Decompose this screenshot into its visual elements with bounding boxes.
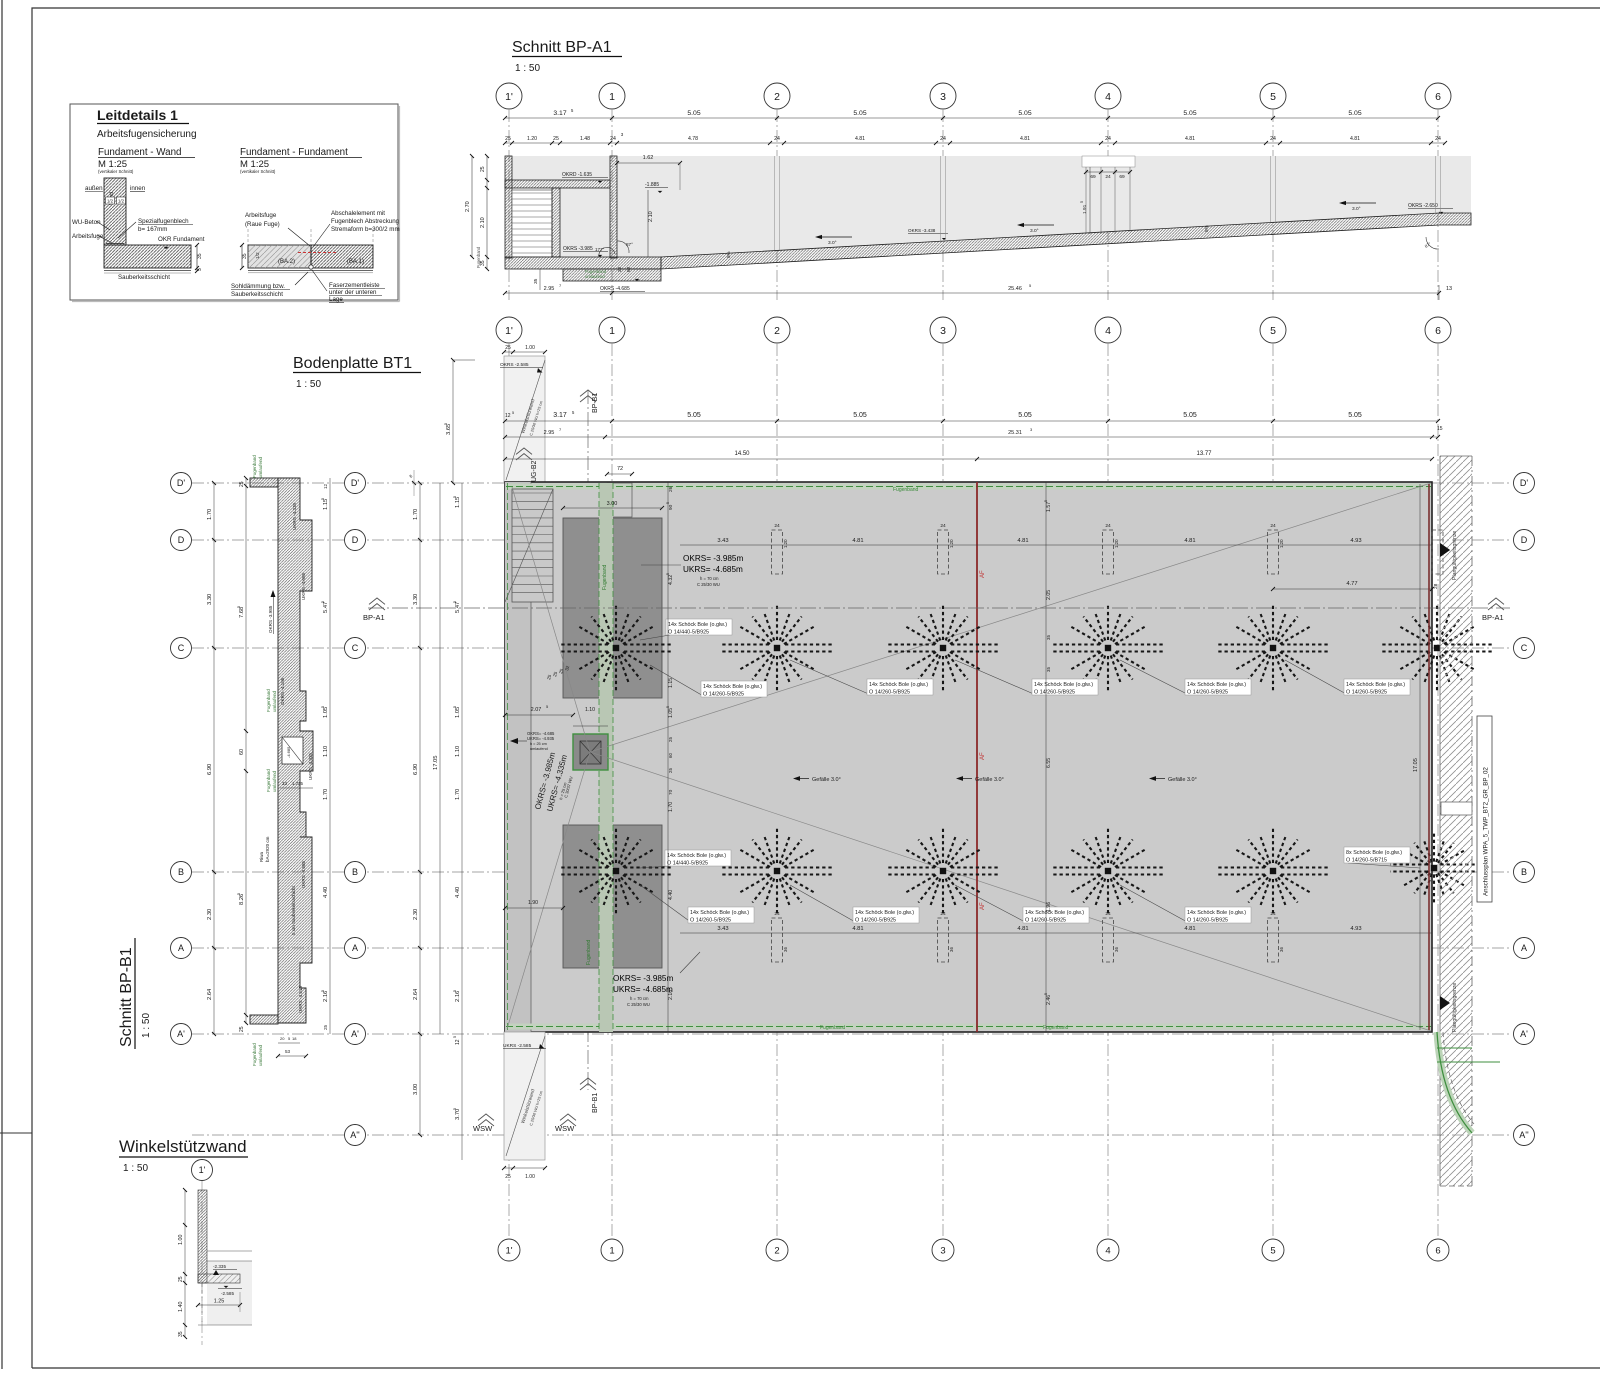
svg-text:-2.585: -2.585 [221,1291,234,1296]
svg-text:2.30: 2.30 [413,909,419,920]
svg-text:1.62: 1.62 [643,155,654,161]
svg-text:25: 25 [178,1276,184,1282]
svg-text:1': 1' [505,91,513,103]
svg-text:-1.885: -1.885 [645,182,659,188]
svg-text:WSW: WSW [473,1124,493,1133]
svg-text:1.25: 1.25 [214,1299,225,1305]
svg-text:1.10: 1.10 [323,746,329,757]
svg-text:4.40: 4.40 [668,890,674,900]
svg-text:O 14/260-5/B925: O 14/260-5/B925 [1346,690,1387,696]
svg-text:C: C [1521,643,1528,653]
svg-text:5: 5 [453,706,457,708]
svg-text:O 14/260-5/B925: O 14/260-5/B925 [1025,918,1066,924]
svg-text:umlaufend: umlaufend [530,747,548,751]
svg-text:60: 60 [668,753,673,758]
svg-text:1.15: 1.15 [668,678,674,688]
svg-text:Gefälle 3.0°: Gefälle 3.0° [975,777,1004,783]
svg-text:Fugenband: Fugenband [252,455,257,478]
svg-text:A: A [1521,943,1527,953]
svg-text:1 : 50: 1 : 50 [515,63,540,74]
svg-text:3: 3 [940,325,946,337]
svg-text:4.81: 4.81 [852,926,863,932]
svg-text:A': A' [177,1029,185,1039]
svg-text:5: 5 [321,498,325,500]
svg-text:Fugenband: Fugenband [893,487,919,493]
svg-text:17.05: 17.05 [433,755,439,770]
svg-text:1.00: 1.00 [525,345,535,351]
svg-text:53: 53 [285,1049,291,1054]
svg-text:O 14/260-5/B925: O 14/260-5/B925 [1187,690,1228,696]
svg-text:Fugenband: Fugenband [820,1025,846,1031]
svg-text:6.55: 6.55 [1046,758,1052,768]
svg-text:1/2: 1/2 [118,199,125,204]
svg-text:14x Schöck Bole (o.glw.): 14x Schöck Bole (o.glw.) [667,853,726,859]
svg-text:2.10: 2.10 [480,217,486,228]
svg-text:1.91: 1.91 [1082,204,1088,214]
svg-text:24: 24 [940,911,946,917]
svg-text:69: 69 [1119,174,1125,180]
svg-text:1: 1 [609,91,615,103]
svg-text:5.05: 5.05 [1348,412,1362,419]
svg-text:25: 25 [668,737,673,742]
svg-text:2.30: 2.30 [207,909,213,920]
svg-text:8x Schöck Bole (o.glw.): 8x Schöck Bole (o.glw.) [1346,850,1402,856]
svg-text:1.70: 1.70 [413,509,419,520]
svg-text:25: 25 [239,1026,245,1032]
svg-text:5: 5 [666,502,670,504]
svg-text:Gefälle 3.0°: Gefälle 3.0° [1168,777,1197,783]
svg-text:25: 25 [668,768,673,773]
svg-text:5: 5 [321,990,325,992]
svg-text:4.81: 4.81 [852,538,863,544]
svg-text:1.70: 1.70 [668,802,674,812]
svg-text:innen: innen [130,185,146,192]
svg-text:bA=2920 cm: bA=2920 cm [265,836,270,862]
svg-text:13.77: 13.77 [1196,451,1212,457]
svg-text:3.30: 3.30 [413,594,419,605]
svg-text:14x Schöck Bole (o.glw.): 14x Schöck Bole (o.glw.) [690,910,749,916]
svg-text:1/2: 1/2 [107,199,114,204]
svg-text:1.70: 1.70 [207,509,213,520]
svg-text:2.70: 2.70 [465,201,471,212]
svg-text:14x Schöck Bole (o.glw.): 14x Schöck Bole (o.glw.) [1034,682,1093,688]
svg-text:5: 5 [237,606,241,608]
svg-text:5: 5 [1044,993,1048,995]
svg-text:24: 24 [1105,174,1111,180]
svg-text:2.95: 2.95 [544,430,555,436]
svg-text:B: B [352,867,358,877]
svg-text:Arbeitsfuge: Arbeitsfuge [72,233,104,240]
svg-text:14.50: 14.50 [734,451,750,457]
svg-text:BP-B1: BP-B1 [592,393,599,413]
svg-text:1.20: 1.20 [1279,539,1284,548]
svg-text:OKRS -2.585: OKRS -2.585 [500,362,529,368]
svg-text:1.725: 1.725 [292,781,304,786]
svg-text:(vertikaler Schnitt): (vertikaler Schnitt) [98,169,134,174]
svg-text:UKRS= -4.685m: UKRS= -4.685m [613,985,673,994]
svg-text:6: 6 [1435,1245,1440,1256]
svg-text:O 14/260-5/B925: O 14/260-5/B925 [1187,918,1228,924]
svg-text:5.05: 5.05 [853,412,867,419]
svg-text:15: 15 [1437,426,1443,432]
svg-text:4.81: 4.81 [1184,926,1195,932]
svg-text:1.48: 1.48 [580,136,590,142]
svg-text:36: 36 [1114,947,1119,952]
svg-text:OKRD -1.635: OKRD -1.635 [562,172,592,178]
svg-text:24: 24 [774,136,780,142]
svg-text:3.43: 3.43 [717,926,728,932]
svg-text:2: 2 [774,325,780,337]
svg-text:C 25/30 WU: C 25/30 WU [627,1002,650,1007]
svg-text:Sohldämmung bzw.: Sohldämmung bzw. [231,283,285,290]
svg-text:5: 5 [453,1108,457,1110]
svg-text:5: 5 [1044,500,1048,502]
svg-text:Lage: Lage [329,296,343,303]
svg-text:26: 26 [668,486,674,492]
svg-text:5: 5 [453,1036,457,1038]
svg-text:3: 3 [940,91,946,103]
svg-text:60: 60 [239,749,245,755]
svg-text:(vertikaler Schnitt): (vertikaler Schnitt) [240,169,276,174]
svg-text:5: 5 [453,990,457,992]
svg-text:5: 5 [321,601,325,603]
svg-text:5: 5 [197,268,203,271]
svg-text:h = 70 cm: h = 70 cm [630,996,649,1001]
svg-text:-2.335: -2.335 [213,1264,226,1269]
svg-text:1': 1' [505,1245,512,1256]
svg-text:14x Schöck Bole (o.glw.): 14x Schöck Bole (o.glw.) [1346,682,1405,688]
svg-text:Leitdetails 1: Leitdetails 1 [97,107,178,123]
svg-text:A'': A'' [1519,1130,1529,1140]
svg-text:14x Schöck Bole (o.glw.): 14x Schöck Bole (o.glw.) [1025,910,1084,916]
svg-text:OKRS -4.685: OKRS -4.685 [600,286,630,292]
svg-text:Schnitt BP-B1: Schnitt BP-B1 [118,947,135,1047]
svg-text:unter der unteren: unter der unteren [329,289,377,296]
svg-text:3.30: 3.30 [207,594,213,605]
svg-text:25: 25 [239,481,245,487]
svg-text:Fugenband: Fugenband [586,939,592,965]
svg-text:Fugenband: Fugenband [266,689,271,712]
svg-text:WU-Beton: WU-Beton [72,219,101,226]
svg-text:1.20: 1.20 [1114,539,1119,548]
svg-text:1.40: 1.40 [178,1302,184,1313]
svg-text:Schnitt BP-A1: Schnitt BP-A1 [512,39,612,56]
svg-text:O 14/260-5/B925: O 14/260-5/B925 [703,692,744,698]
svg-text:umlaufend: umlaufend [272,690,277,712]
svg-text:Winkelstützwand: Winkelstützwand [119,1137,247,1156]
svg-text:O 14/260-5/B925: O 14/260-5/B925 [869,690,910,696]
svg-text:Sauberkeitsschicht: Sauberkeitsschicht [118,274,170,281]
svg-text:OKRS= -3.985m: OKRS= -3.985m [683,554,743,563]
svg-text:24: 24 [774,523,780,529]
svg-text:3.17: 3.17 [553,412,567,419]
svg-text:24: 24 [1105,911,1111,917]
svg-text:4.93: 4.93 [1350,926,1361,932]
svg-text:Gefälle 3.0°: Gefälle 3.0° [812,777,841,783]
svg-text:1.00: 1.00 [178,1235,184,1246]
svg-text:2.07: 2.07 [531,707,542,713]
svg-text:5: 5 [512,411,514,415]
svg-text:6.90: 6.90 [413,764,419,775]
svg-text:1/2: 1/2 [255,252,261,259]
svg-text:5: 5 [1270,91,1276,103]
svg-text:5%: 5% [726,251,731,258]
svg-text:1': 1' [199,1165,206,1175]
svg-text:35: 35 [533,278,539,284]
svg-text:Riwa: Riwa [259,852,264,862]
svg-text:UKRS -4.335: UKRS -4.335 [292,502,297,530]
svg-text:24: 24 [940,523,946,529]
svg-text:A': A' [351,1029,359,1039]
svg-text:(Raue Fuge): (Raue Fuge) [245,221,280,228]
svg-text:35: 35 [197,253,203,259]
svg-text:12: 12 [323,483,328,489]
svg-text:O 14/260-5/B925: O 14/260-5/B925 [1034,690,1075,696]
svg-text:4.40: 4.40 [323,887,329,898]
svg-text:35: 35 [178,1331,184,1337]
svg-text:24: 24 [1435,136,1441,142]
svg-text:4.78: 4.78 [688,136,698,142]
svg-text:O 14/260-5/B715: O 14/260-5/B715 [1346,858,1387,864]
svg-text:5 cm Sauberkeitsschicht: 5 cm Sauberkeitsschicht [291,885,296,935]
svg-text:OKR Fundament: OKR Fundament [158,236,205,243]
svg-text:2.64: 2.64 [413,988,419,1000]
svg-text:D': D' [351,478,359,488]
svg-text:AF: AF [980,752,986,760]
svg-text:4: 4 [1105,1245,1110,1256]
svg-text:4.93: 4.93 [1350,538,1361,544]
svg-text:36: 36 [1279,947,1284,952]
svg-text:5: 5 [1270,325,1276,337]
svg-text:5.05: 5.05 [687,412,701,419]
svg-text:UKRS= -4.685m: UKRS= -4.685m [683,565,743,574]
svg-text:28: 28 [1433,583,1439,589]
svg-text:36: 36 [949,947,954,952]
svg-text:5.05: 5.05 [853,110,866,117]
svg-text:1.57: 1.57 [1046,502,1052,512]
svg-text:4: 4 [1105,325,1111,337]
svg-text:5: 5 [444,423,448,425]
svg-text:1 : 50: 1 : 50 [141,1013,152,1038]
svg-text:AF: AF [980,570,986,578]
svg-text:umlaufend: umlaufend [585,274,605,279]
svg-text:14x Schöck Bole (o.glw.): 14x Schöck Bole (o.glw.) [1187,910,1246,916]
svg-text:1': 1' [505,325,513,337]
svg-text:UKRS -4.685: UKRS -4.685 [301,860,306,888]
svg-text:umlaufend: umlaufend [272,770,277,792]
svg-text:UG-B2: UG-B2 [531,461,538,483]
svg-text:35: 35 [1046,635,1051,640]
svg-text:A': A' [1520,1029,1528,1039]
svg-text:OKRS= -3.985m: OKRS= -3.985m [613,974,673,983]
svg-text:18: 18 [292,1036,297,1041]
svg-text:1.20: 1.20 [783,539,788,548]
svg-text:6.90: 6.90 [207,764,213,775]
svg-text:h = 70 cm: h = 70 cm [700,576,719,581]
svg-text:36: 36 [783,947,788,952]
svg-text:4.81: 4.81 [1017,538,1028,544]
svg-text:D: D [1521,535,1528,545]
svg-text:4.32: 4.32 [668,575,674,585]
svg-text:UKRS= -4.935: UKRS= -4.935 [527,736,555,741]
svg-text:Arbeitsfuge: Arbeitsfuge [245,212,277,219]
svg-text:35: 35 [1046,667,1051,672]
svg-text:4.77: 4.77 [1346,581,1357,587]
svg-text:2.46: 2.46 [1046,995,1052,1005]
svg-text:Plangültigkeitsgrenze: Plangültigkeitsgrenze [1452,531,1458,580]
svg-text:25: 25 [505,345,511,351]
svg-text:BP-A1: BP-A1 [363,613,385,622]
svg-text:14x Schöck Bole (o.glw.): 14x Schöck Bole (o.glw.) [668,622,727,628]
svg-text:BP-B1: BP-B1 [592,1093,599,1113]
svg-text:14x Schöck Bole (o.glw.): 14x Schöck Bole (o.glw.) [869,682,928,688]
svg-text:2: 2 [774,1245,779,1256]
svg-text:-4.685: -4.685 [286,746,291,758]
svg-text:3.00: 3.00 [413,1084,419,1095]
svg-text:Fundament - Wand: Fundament - Wand [98,147,182,158]
svg-text:5: 5 [321,706,325,708]
svg-text:5.05: 5.05 [1018,110,1031,117]
svg-text:Arbeitsfugensicherung: Arbeitsfugensicherung [97,129,197,140]
svg-text:35: 35 [242,253,248,259]
svg-text:72: 72 [617,466,623,472]
svg-text:25.31: 25.31 [1008,430,1022,436]
svg-text:Faserzementleiste: Faserzementleiste [329,282,380,289]
svg-text:14x Schöck Bole (o.glw.): 14x Schöck Bole (o.glw.) [703,684,762,690]
svg-text:Fugenband: Fugenband [476,246,481,268]
svg-text:UKRS -4.685: UKRS -4.685 [301,572,306,600]
svg-text:B: B [1521,867,1527,877]
svg-text:AF: AF [980,902,986,910]
svg-text:1.90: 1.90 [528,900,538,906]
svg-text:Abschalelement mit: Abschalelement mit [331,210,385,217]
svg-text:2: 2 [774,91,780,103]
svg-text:2.05: 2.05 [1046,590,1052,600]
svg-text:C 25/30 WU: C 25/30 WU [697,582,720,587]
svg-text:14x Schöck Bole (o.glw.): 14x Schöck Bole (o.glw.) [855,910,914,916]
svg-text:Fugenband: Fugenband [1043,1025,1069,1031]
svg-text:1 : 50: 1 : 50 [296,379,321,390]
svg-text:OKRS -4.185: OKRS -4.185 [280,677,285,705]
svg-text:24: 24 [940,136,946,142]
svg-text:5: 5 [666,706,670,708]
svg-text:87°: 87° [626,242,633,247]
svg-text:Spezialfugenblech: Spezialfugenblech [138,218,189,225]
svg-text:70: 70 [668,789,674,795]
svg-text:25: 25 [323,1024,328,1030]
svg-text:h = 25 cm: h = 25 cm [530,742,547,746]
svg-text:BP-A1: BP-A1 [1482,613,1504,622]
svg-text:5: 5 [1270,1245,1275,1256]
svg-text:5.05: 5.05 [687,110,700,117]
svg-text:25.46: 25.46 [1008,286,1022,292]
svg-text:O 14/440-5/B925: O 14/440-5/B925 [668,630,709,636]
svg-text:C: C [178,643,185,653]
svg-text:Anschlussplan WPA_5_TWP_BT2_GR: Anschlussplan WPA_5_TWP_BT2_GR_BP_02 [1483,767,1490,896]
svg-text:3.00: 3.00 [607,501,618,507]
svg-text:OKRS -3.985: OKRS -3.985 [563,246,593,252]
svg-text:5: 5 [1080,201,1084,203]
svg-text:25: 25 [553,136,559,142]
svg-text:1.20: 1.20 [527,136,537,142]
svg-text:5: 5 [453,496,457,498]
svg-text:A: A [178,943,184,953]
svg-text:5: 5 [453,601,457,603]
svg-text:D': D' [177,478,185,488]
svg-text:1.96: 1.96 [1046,902,1052,912]
svg-text:Stremaform b=300/2 mm: Stremaform b=300/2 mm [331,226,400,233]
svg-text:1.00: 1.00 [525,1174,535,1180]
svg-text:24: 24 [1270,136,1276,142]
svg-text:1.10: 1.10 [455,746,461,757]
svg-text:3.0°: 3.0° [1352,206,1361,212]
svg-text:Fugenband: Fugenband [252,1043,257,1066]
svg-text:Fugenblech Abstreckung: Fugenblech Abstreckung [331,218,400,225]
svg-text:4.81: 4.81 [1020,136,1030,142]
svg-text:1 : 50: 1 : 50 [123,1163,148,1174]
svg-text:UKRS -2.585: UKRS -2.585 [503,1043,532,1049]
svg-text:A'': A'' [350,1130,360,1140]
svg-text:D': D' [1520,478,1528,488]
svg-text:12: 12 [505,413,511,419]
svg-text:(BA.1): (BA.1) [347,259,364,265]
svg-text:1.10: 1.10 [585,707,595,713]
svg-text:A: A [352,943,358,953]
svg-text:24: 24 [610,136,616,142]
svg-text:außen: außen [85,185,103,192]
svg-text:Fugenband: Fugenband [602,564,608,590]
svg-text:3.0°: 3.0° [1030,228,1039,234]
svg-text:Plangültigkeitsgrenze: Plangültigkeitsgrenze [1452,983,1458,1032]
svg-text:5.05: 5.05 [1183,412,1197,419]
svg-text:1.05: 1.05 [668,708,674,718]
svg-text:5: 5 [666,988,670,990]
svg-text:5: 5 [237,893,241,895]
svg-text:22: 22 [617,266,623,272]
svg-text:B: B [178,867,184,877]
svg-text:5.05: 5.05 [1183,110,1196,117]
svg-text:24: 24 [1270,911,1276,917]
svg-text:(BA.2): (BA.2) [278,259,295,265]
svg-text:4.81: 4.81 [1017,926,1028,932]
svg-text:25: 25 [505,136,511,142]
svg-text:33: 33 [282,781,287,786]
svg-text:O 14/260-5/B925: O 14/260-5/B925 [690,918,731,924]
svg-text:4.81: 4.81 [1184,538,1195,544]
svg-text:OKRS -3.985: OKRS -3.985 [268,605,273,633]
svg-text:WSW: WSW [555,1124,575,1133]
svg-text:O 14/260-5/B925: O 14/260-5/B925 [855,918,896,924]
svg-text:2.95: 2.95 [544,286,555,292]
svg-text:Fugenband: Fugenband [266,769,271,792]
svg-text:UKRS -4.935: UKRS -4.935 [308,752,313,780]
svg-text:Sauberkeitsschicht: Sauberkeitsschicht [231,291,283,298]
svg-text:17.05: 17.05 [1413,758,1419,772]
svg-text:12: 12 [455,1039,461,1045]
svg-text:UKRS -4.515: UKRS -4.515 [298,985,303,1013]
svg-text:3.17: 3.17 [553,110,566,117]
svg-text:20: 20 [280,1036,285,1041]
svg-text:2.64: 2.64 [207,988,213,1000]
svg-text:4.81: 4.81 [855,136,865,142]
svg-text:90: 90 [668,504,674,510]
svg-text:6: 6 [1435,91,1441,103]
svg-text:69: 69 [1090,174,1096,180]
svg-text:5%: 5% [1204,225,1209,232]
svg-text:1.70: 1.70 [455,789,461,800]
svg-text:1: 1 [609,1245,614,1256]
svg-text:1.20: 1.20 [949,539,954,548]
